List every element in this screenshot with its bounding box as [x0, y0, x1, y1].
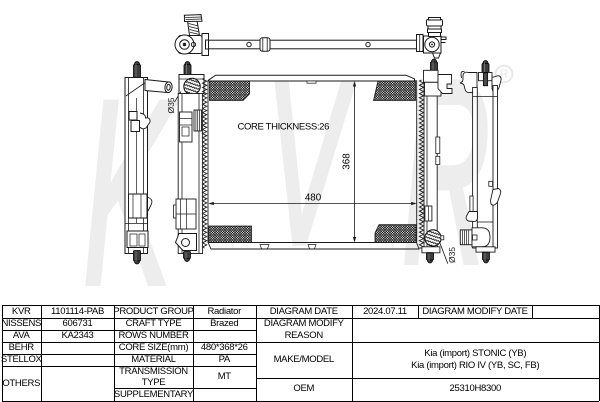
svg-text:368: 368 — [342, 153, 353, 170]
svg-text:480: 480 — [305, 193, 322, 204]
svg-text:Ø35: Ø35 — [166, 97, 176, 113]
svg-text:Ø35: Ø35 — [447, 247, 457, 263]
svg-text:CORE THICKNESS:26: CORE THICKNESS:26 — [238, 122, 330, 133]
